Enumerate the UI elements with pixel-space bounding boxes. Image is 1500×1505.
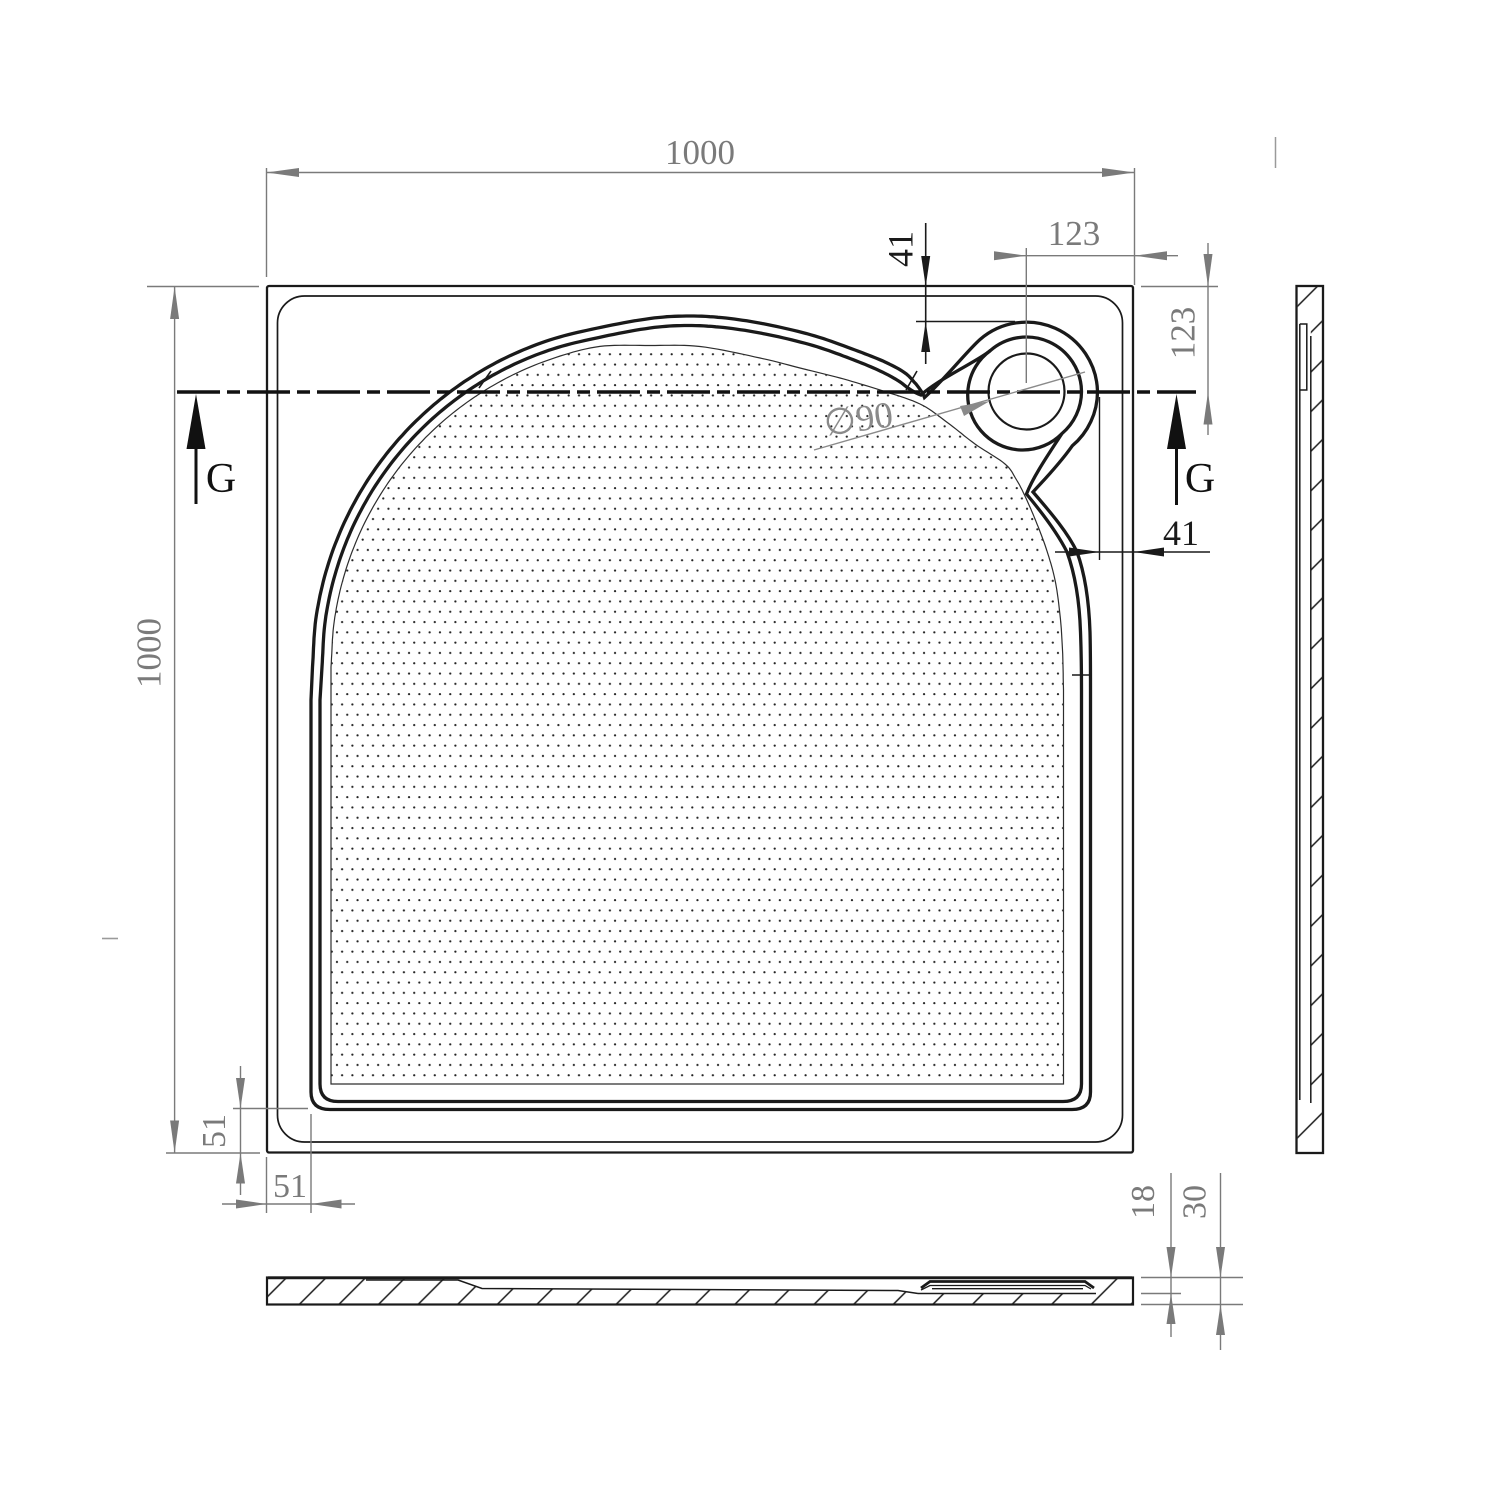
svg-text:41: 41	[880, 231, 920, 267]
svg-text:123: 123	[1164, 307, 1203, 360]
svg-text:30: 30	[1176, 1185, 1213, 1219]
svg-text:18: 18	[1125, 1185, 1162, 1219]
svg-text:51: 51	[196, 1114, 233, 1148]
svg-text:51: 51	[273, 1168, 307, 1205]
svg-text:G: G	[206, 456, 236, 502]
svg-text:41: 41	[1163, 513, 1199, 553]
svg-text:1000: 1000	[665, 133, 735, 172]
svg-text:1000: 1000	[130, 618, 169, 688]
svg-text:G: G	[1185, 456, 1215, 502]
svg-text:123: 123	[1048, 214, 1101, 253]
